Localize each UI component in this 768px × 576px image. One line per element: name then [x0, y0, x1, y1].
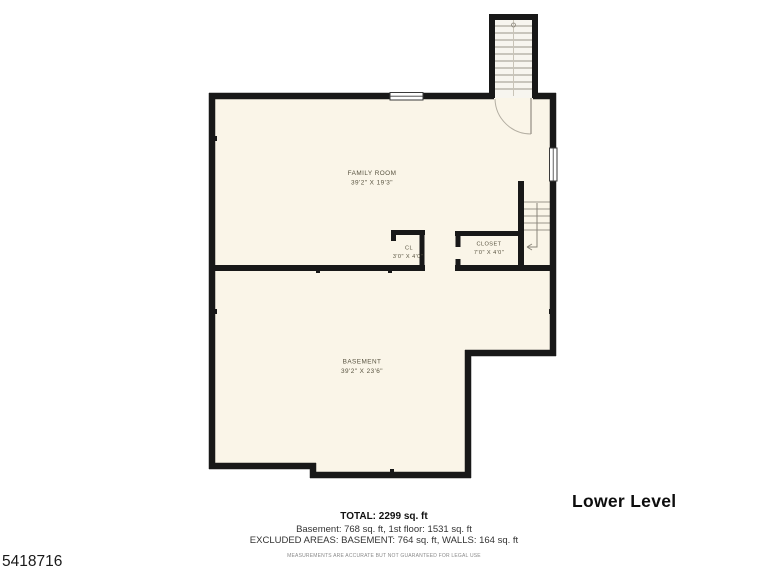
summary-breakdown: Basement: 768 sq. ft, 1st floor: 1531 sq…	[0, 524, 768, 535]
floorplan-page: { "plan": { "wall_color": "#181818", "fl…	[0, 0, 768, 576]
room-label-basement: BASEMENT	[343, 359, 382, 366]
window-top	[390, 93, 423, 101]
room-dims-closet: 7'0" X 4'0"	[474, 250, 504, 256]
room-label-family-room: FAMILY ROOM	[348, 170, 397, 177]
summary-excluded: EXCLUDED AREAS: BASEMENT: 764 sq. ft, WA…	[0, 535, 768, 546]
level-title: Lower Level	[572, 491, 676, 512]
room-label-closet: CLOSET	[476, 242, 501, 248]
listing-id: 5418716	[2, 553, 62, 571]
room-label-cl: CL	[405, 246, 413, 252]
room-dims-basement: 39'2" X 23'6"	[341, 368, 383, 375]
room-dims-family-room: 39'2" X 19'3"	[351, 180, 393, 187]
floor-area	[212, 96, 553, 475]
exterior-staircase	[489, 14, 538, 98]
summary-total: TOTAL: 2299 sq. ft	[0, 511, 768, 522]
room-dims-cl: 3'0" X 4'0"	[393, 254, 423, 260]
window-right	[550, 148, 558, 181]
floor-plan-drawing: FAMILY ROOM 39'2" X 19'3" CL 3'0" X 4'0"…	[0, 0, 768, 576]
summary-disclaimer: MEASUREMENTS ARE ACCURATE BUT NOT GUARAN…	[0, 553, 768, 559]
